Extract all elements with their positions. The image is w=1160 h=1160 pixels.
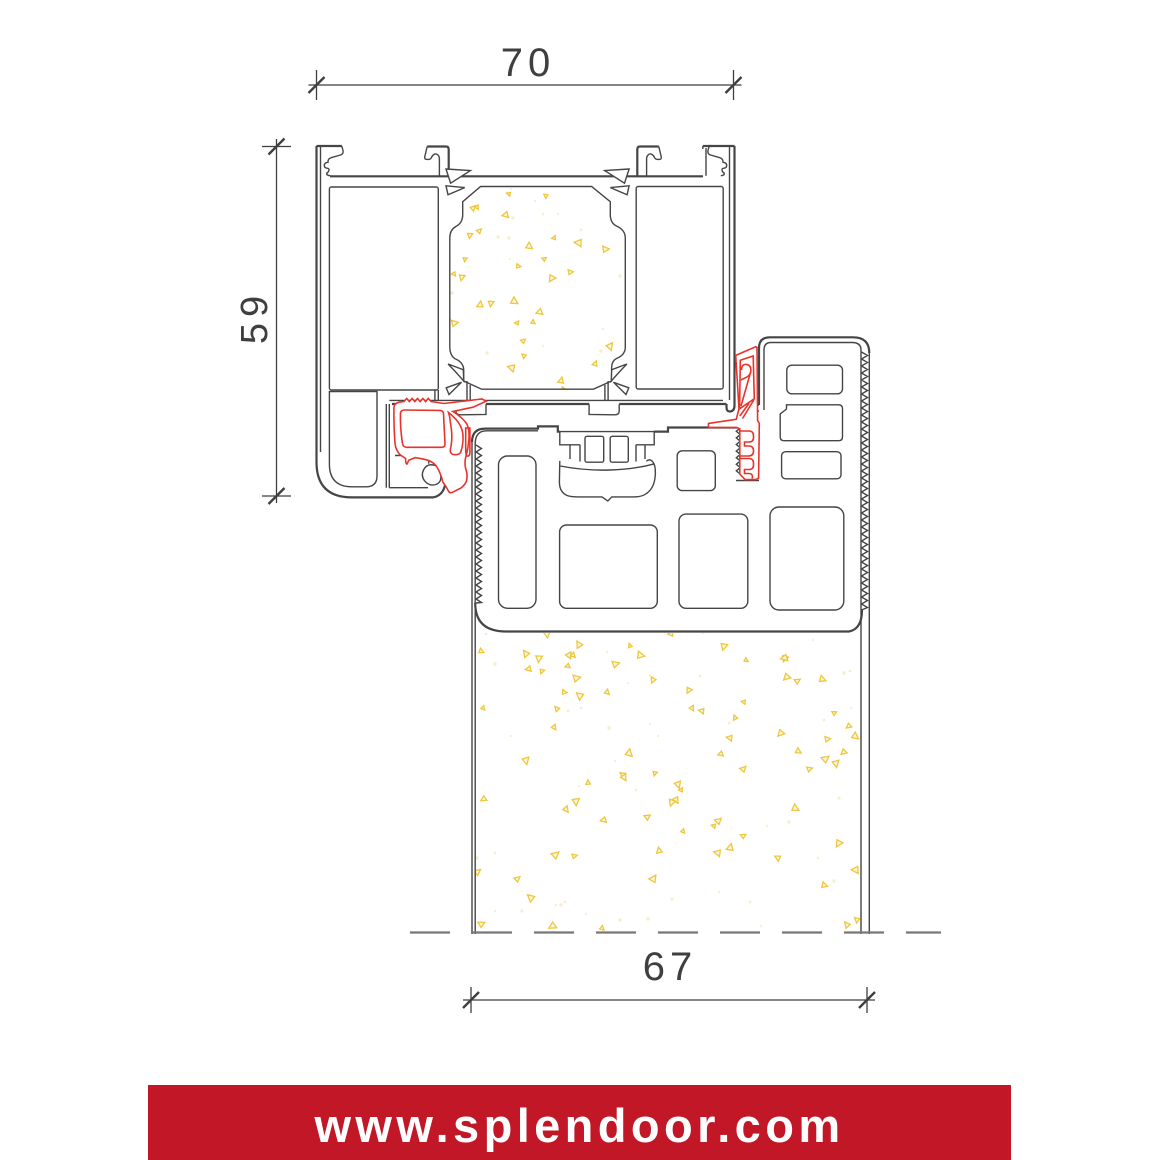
svg-text:59: 59 — [234, 290, 276, 344]
svg-text:70: 70 — [501, 41, 556, 85]
svg-text:67: 67 — [643, 945, 698, 989]
